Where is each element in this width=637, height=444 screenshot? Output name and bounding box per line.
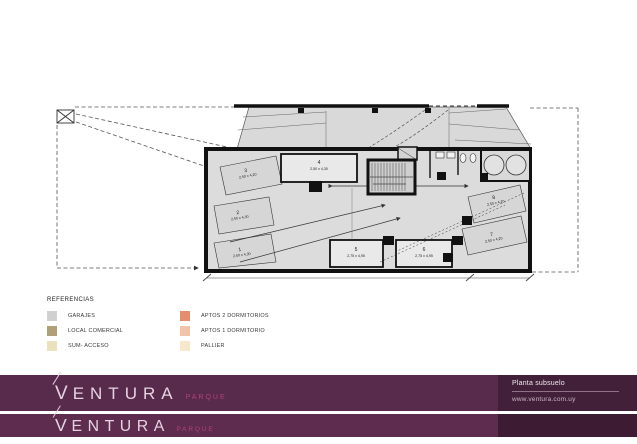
legend-item-garajes: GARAJES bbox=[47, 311, 180, 321]
water-tank bbox=[484, 155, 504, 175]
toilet bbox=[460, 154, 466, 163]
toilet bbox=[470, 154, 476, 163]
sink bbox=[447, 152, 455, 158]
panel-divider bbox=[512, 391, 619, 392]
logo-wordmark: ENTURA bbox=[73, 384, 179, 404]
legend-label: LOCAL COMERCIAL bbox=[68, 328, 123, 334]
legend-title: REFERENCIAS bbox=[47, 297, 269, 303]
legend-label: SUM- ACCESO bbox=[68, 343, 109, 349]
space-5-label: 5 bbox=[355, 247, 358, 253]
legend-swatch bbox=[47, 311, 57, 321]
dimension-line bbox=[203, 274, 534, 281]
footer-bar-secondary: V ENTURA PARQUE bbox=[0, 414, 637, 437]
legend-item-local-comercial: LOCAL COMERCIAL bbox=[47, 326, 180, 336]
title-panel: Planta subsuelo www.ventura.com.uy bbox=[498, 375, 637, 411]
website-url: www.ventura.com.uy bbox=[512, 396, 637, 403]
logo-initial: V bbox=[55, 383, 73, 404]
ventura-logo: V ENTURA PARQUE bbox=[55, 416, 215, 436]
ventura-logo: V ENTURA PARQUE bbox=[55, 383, 227, 405]
water-tank bbox=[506, 155, 526, 175]
legend-item-aptos-1-dormitorio: APTOS 1 DORMITORIO bbox=[180, 326, 269, 336]
legend-label: APTOS 1 DORMITORIO bbox=[201, 328, 265, 334]
legend-swatch bbox=[180, 326, 190, 336]
logo-initial: V bbox=[55, 416, 71, 436]
space-4-dims: 2,50 x 4,30 bbox=[310, 167, 328, 171]
legend-swatch bbox=[47, 326, 57, 336]
legend-label: APTOS 2 DORMITORIOS bbox=[201, 313, 269, 319]
title-panel-secondary bbox=[498, 414, 637, 437]
legend-item-pallier: PALLIER bbox=[180, 341, 269, 351]
plan-title: Planta subsuelo bbox=[512, 380, 637, 387]
logo-subtitle: PARQUE bbox=[176, 426, 214, 433]
space-5-dims: 2,75 x 4,95 bbox=[347, 254, 365, 258]
legend-swatch bbox=[180, 311, 190, 321]
sink bbox=[436, 152, 444, 158]
space-6-label: 6 bbox=[423, 247, 426, 253]
legend-swatch bbox=[47, 341, 57, 351]
legend-item-sum-acceso: SUM- ACCESO bbox=[47, 341, 180, 351]
floor-plan: 1 2,50 x 4,30 2 2,50 x 4,30 3 2,50 x 4,2… bbox=[0, 0, 637, 310]
legend-label: PALLIER bbox=[201, 343, 225, 349]
logo-subtitle: PARQUE bbox=[186, 394, 227, 401]
space-4-label: 4 bbox=[318, 160, 321, 166]
legend: REFERENCIAS GARAJES LOCAL COMERCIAL SUM-… bbox=[47, 297, 269, 356]
space-6-dims: 2,75 x 4,95 bbox=[415, 254, 433, 258]
legend-swatch bbox=[180, 341, 190, 351]
footer-bar-primary: V ENTURA PARQUE Planta subsuelo www.vent… bbox=[0, 375, 637, 411]
boundary-marker-box bbox=[57, 110, 74, 123]
legend-item-aptos-2-dormitorios: APTOS 2 DORMITORIOS bbox=[180, 311, 269, 321]
plan-sheet: 1 2,50 x 4,30 2 2,50 x 4,30 3 2,50 x 4,2… bbox=[0, 0, 637, 444]
legend-label: GARAJES bbox=[68, 313, 95, 319]
logo-wordmark: ENTURA bbox=[71, 417, 169, 436]
